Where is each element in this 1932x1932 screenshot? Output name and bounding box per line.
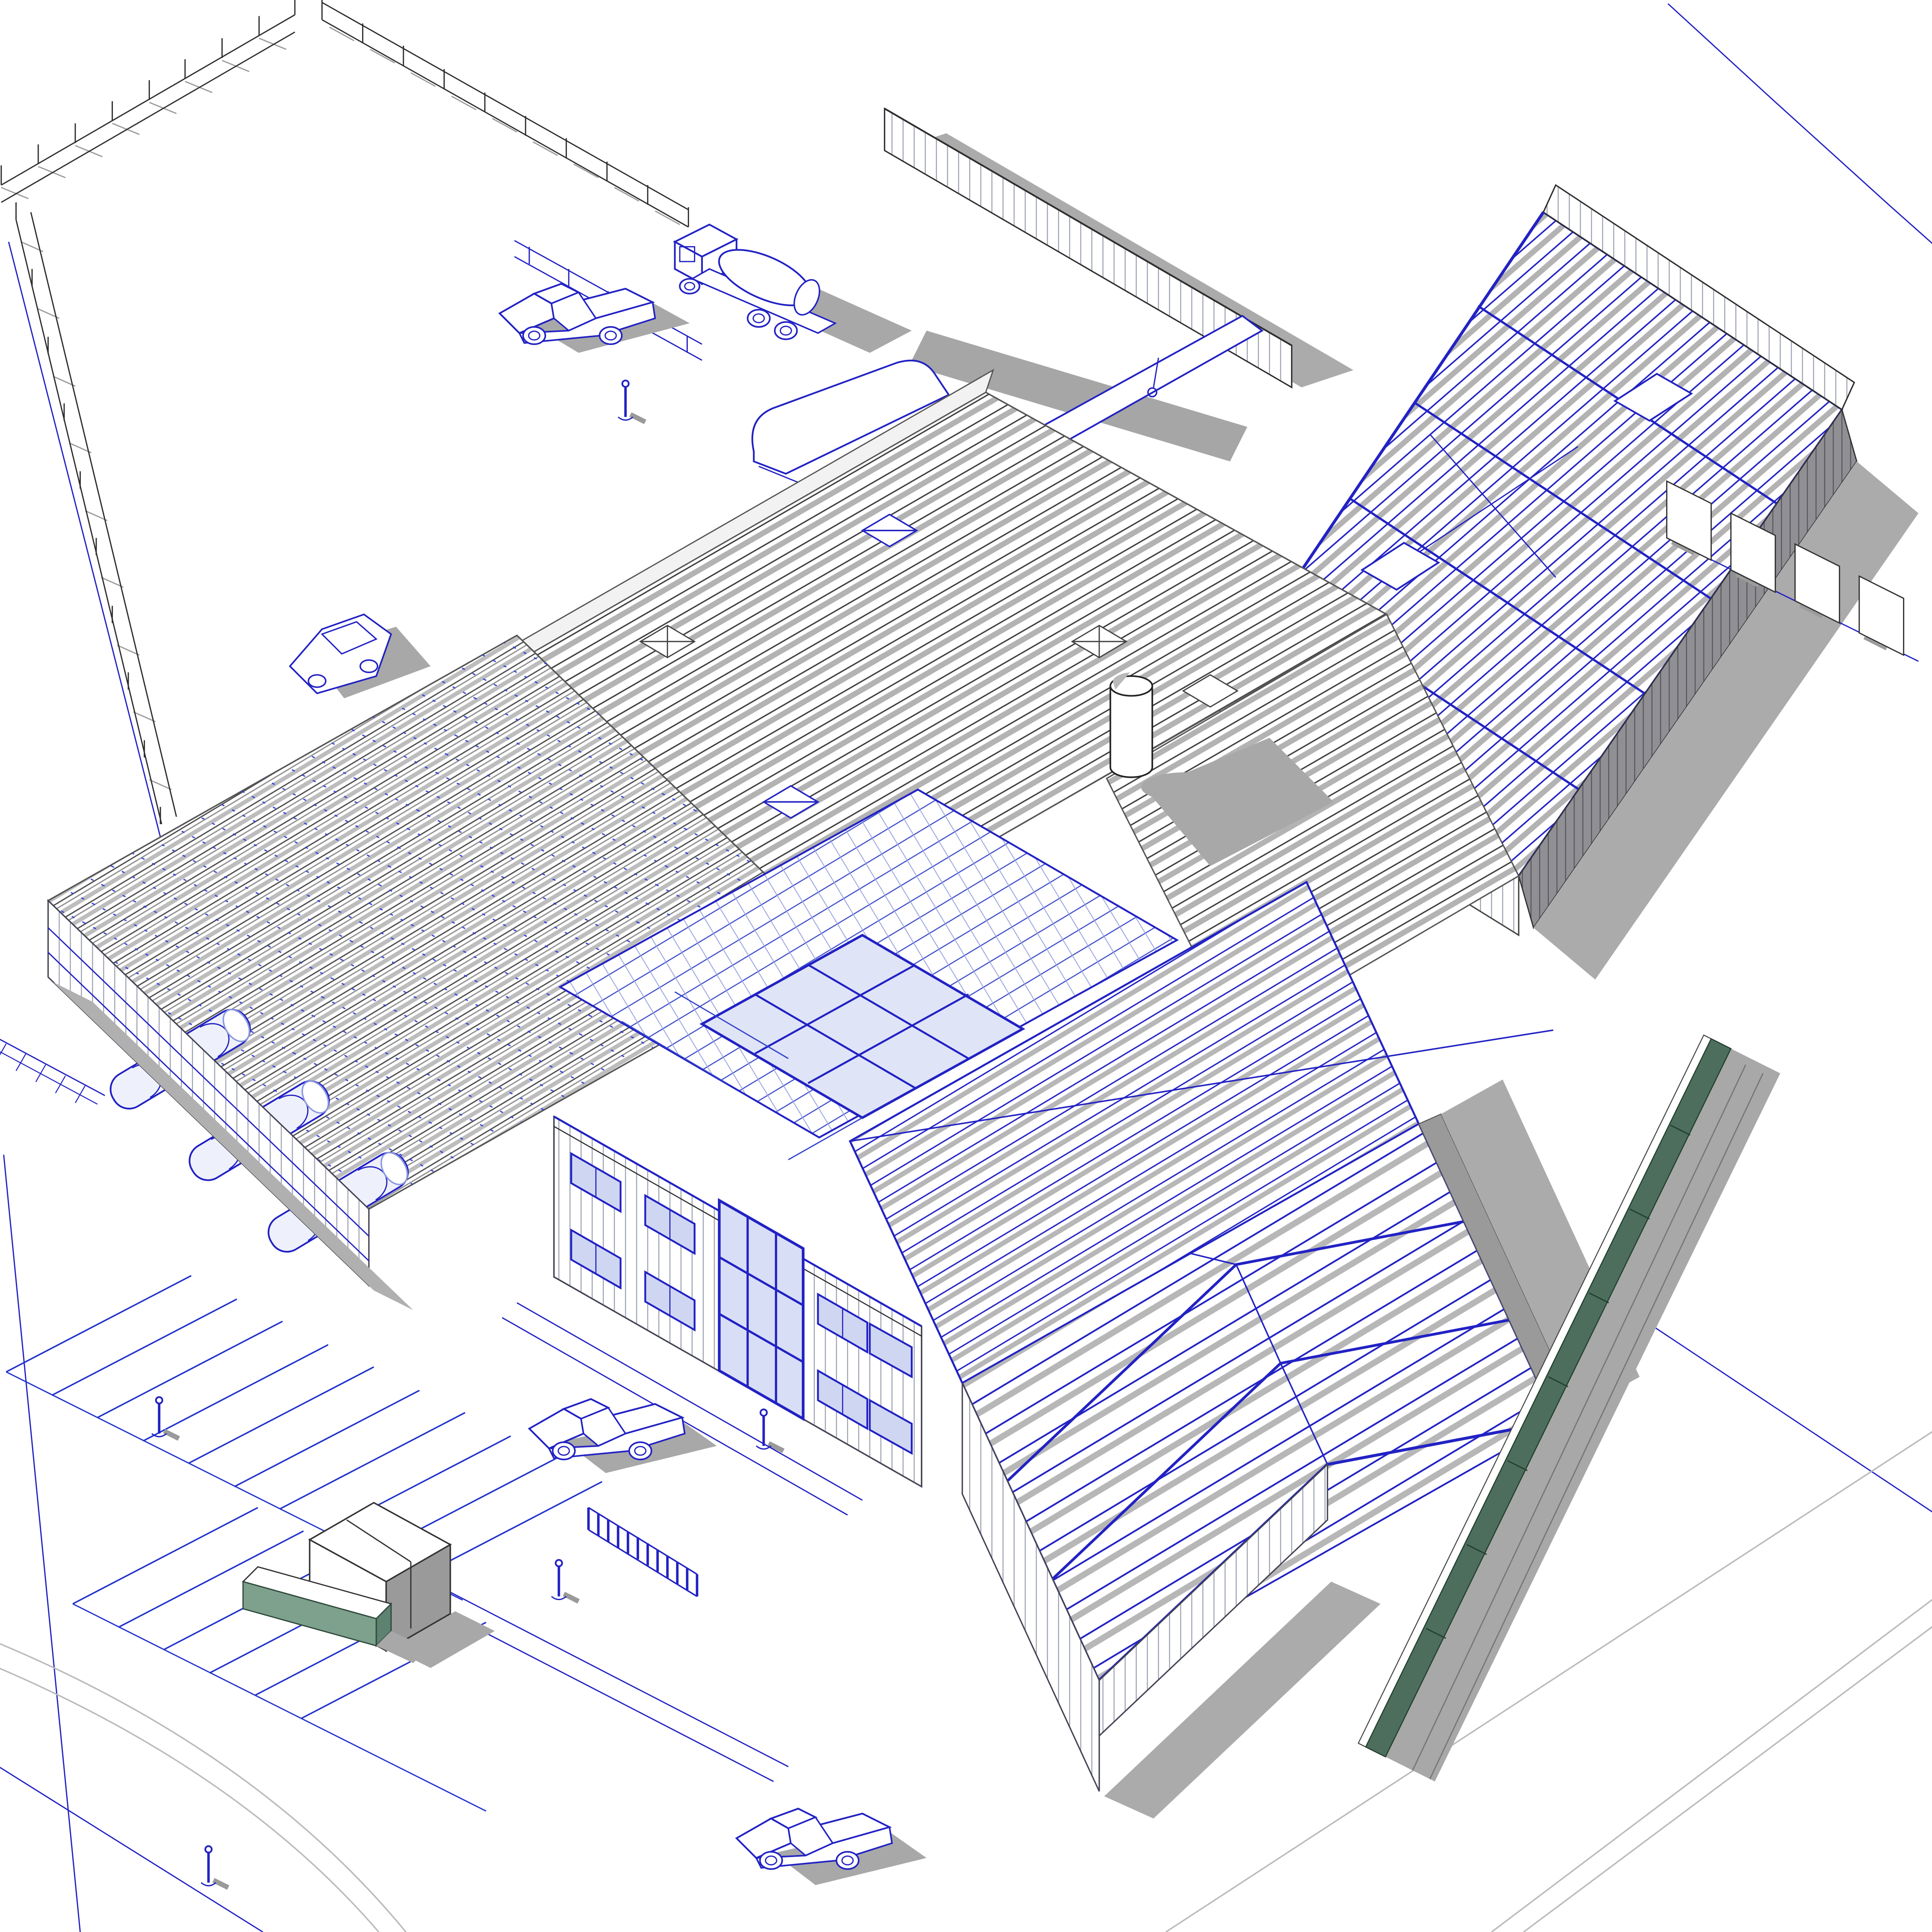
cad-viewport: [0, 0, 1932, 1932]
parking-area: [6, 1276, 602, 1888]
glazed-entrance: [719, 1201, 803, 1419]
parked-sedan: [290, 614, 430, 698]
courtyard-gate: [588, 1508, 697, 1597]
road-curb-lines: [0, 1431, 1932, 1932]
pickup-truck-courtyard: [529, 1399, 717, 1473]
pickup-truck-northwest: [500, 284, 690, 353]
concrete-mixer-truck: [675, 224, 912, 353]
perimeter-fence-west: [9, 202, 176, 871]
pickup-truck-south: [736, 1809, 927, 1885]
parking-stripes: [6, 1276, 602, 1718]
perimeter-fence-northwest: [1, 0, 295, 202]
model-canvas: [0, 0, 1932, 1932]
